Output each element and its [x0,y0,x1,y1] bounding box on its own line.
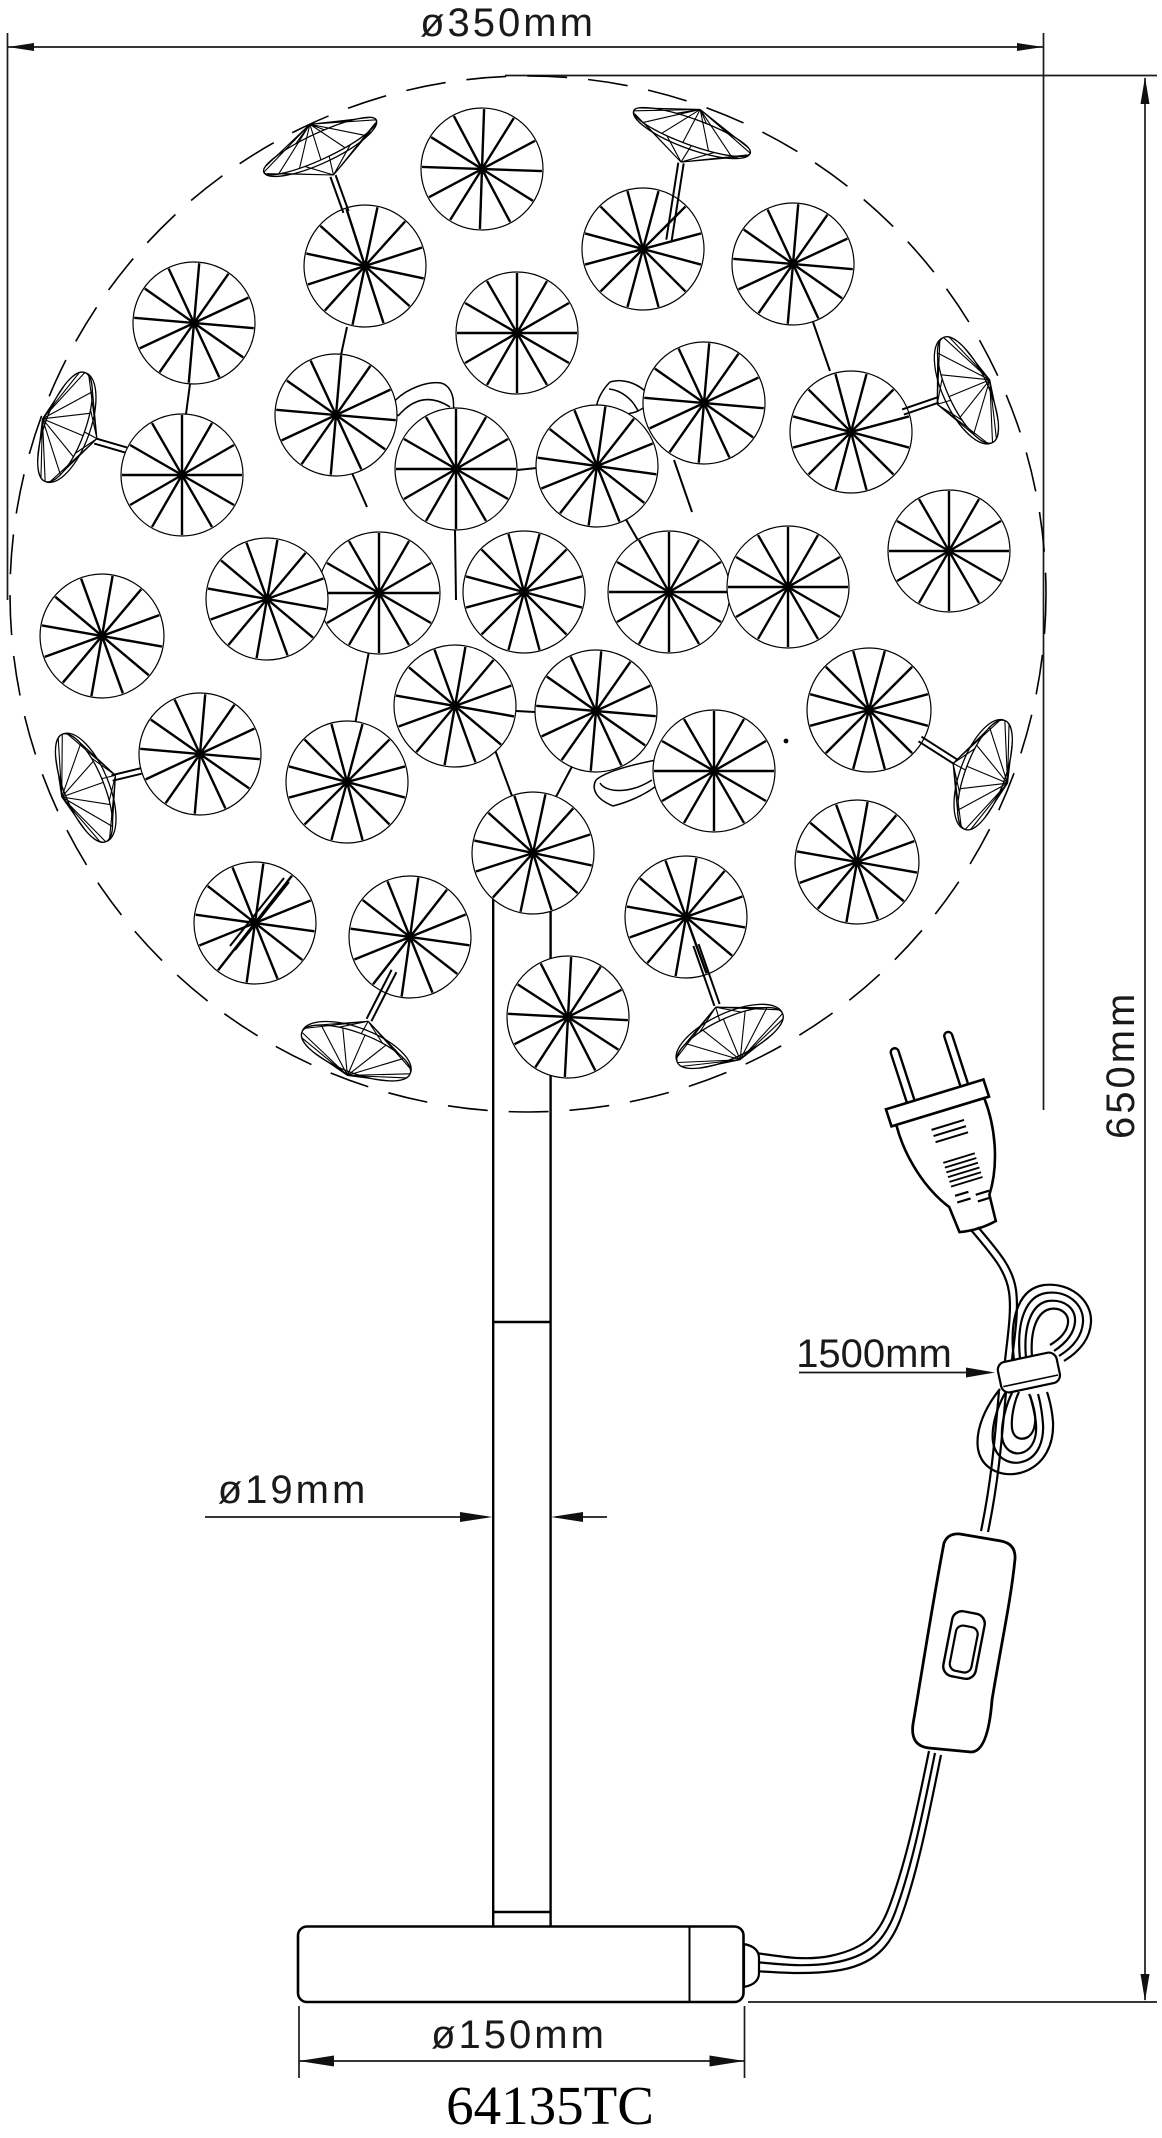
svg-text:ø150mm: ø150mm [431,2013,607,2057]
svg-text:1500mm: 1500mm [796,1332,952,1376]
svg-text:ø350mm: ø350mm [420,1,596,45]
svg-text:64135TC: 64135TC [446,2075,654,2136]
svg-text:650mm: 650mm [1099,991,1143,1139]
svg-text:ø19mm: ø19mm [218,1468,369,1512]
